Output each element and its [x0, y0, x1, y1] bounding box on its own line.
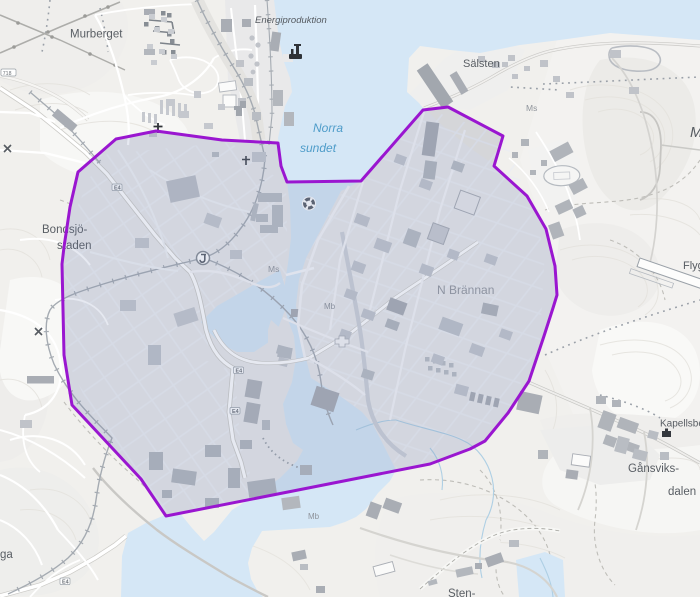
svg-text:M: M [690, 124, 700, 141]
svg-text:Ms: Ms [526, 103, 537, 113]
svg-text:E4: E4 [62, 580, 69, 586]
svg-text:Mb: Mb [308, 512, 320, 521]
svg-text:Sälsten: Sälsten [463, 58, 500, 70]
svg-text:Sten-: Sten- [448, 588, 476, 597]
svg-text:Kapellsber: Kapellsber [660, 419, 700, 430]
svg-text:Flyg: Flyg [683, 260, 700, 272]
svg-text:Gånsviks-: Gånsviks- [628, 463, 679, 475]
svg-text:Energiproduktion: Energiproduktion [255, 15, 327, 26]
svg-text:718: 718 [3, 71, 12, 77]
svg-text:Norra: Norra [313, 121, 343, 135]
svg-text:Murberget: Murberget [70, 29, 123, 41]
svg-text:dalen: dalen [668, 486, 696, 498]
svg-text:sundet: sundet [300, 141, 337, 155]
svg-text:ga: ga [0, 549, 13, 561]
